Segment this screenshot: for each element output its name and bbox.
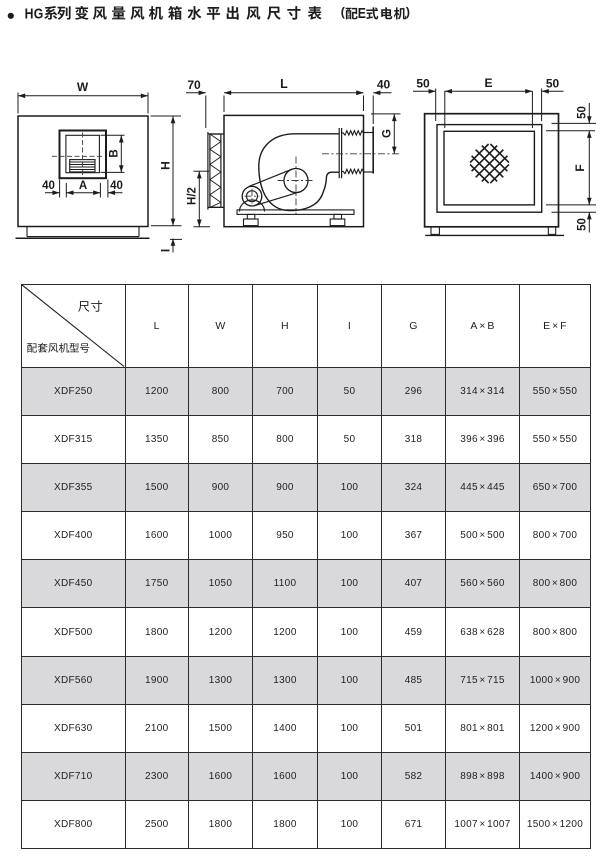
svg-text:): ) (406, 5, 410, 19)
svg-text:(: ( (341, 5, 346, 19)
svg-text:40: 40 (377, 78, 391, 92)
svg-text:A: A (79, 180, 87, 192)
svg-text:I: I (159, 249, 173, 252)
svg-text:HG: HG (25, 5, 44, 21)
svg-text:70: 70 (187, 78, 201, 92)
svg-text:50: 50 (576, 218, 588, 231)
svg-text:50: 50 (576, 106, 588, 119)
svg-text:E: E (358, 5, 366, 21)
svg-text:G: G (381, 129, 393, 138)
svg-text:W: W (77, 80, 89, 94)
svg-text:E: E (484, 76, 492, 90)
svg-text:F: F (573, 164, 587, 171)
svg-text:L: L (280, 77, 288, 91)
svg-text:50: 50 (416, 77, 430, 91)
svg-text:50: 50 (546, 77, 560, 91)
svg-text:40: 40 (42, 180, 55, 192)
svg-text:B: B (109, 149, 121, 157)
svg-text:H/2: H/2 (187, 187, 199, 205)
svg-text:40: 40 (110, 180, 123, 192)
svg-text:H: H (159, 161, 173, 170)
